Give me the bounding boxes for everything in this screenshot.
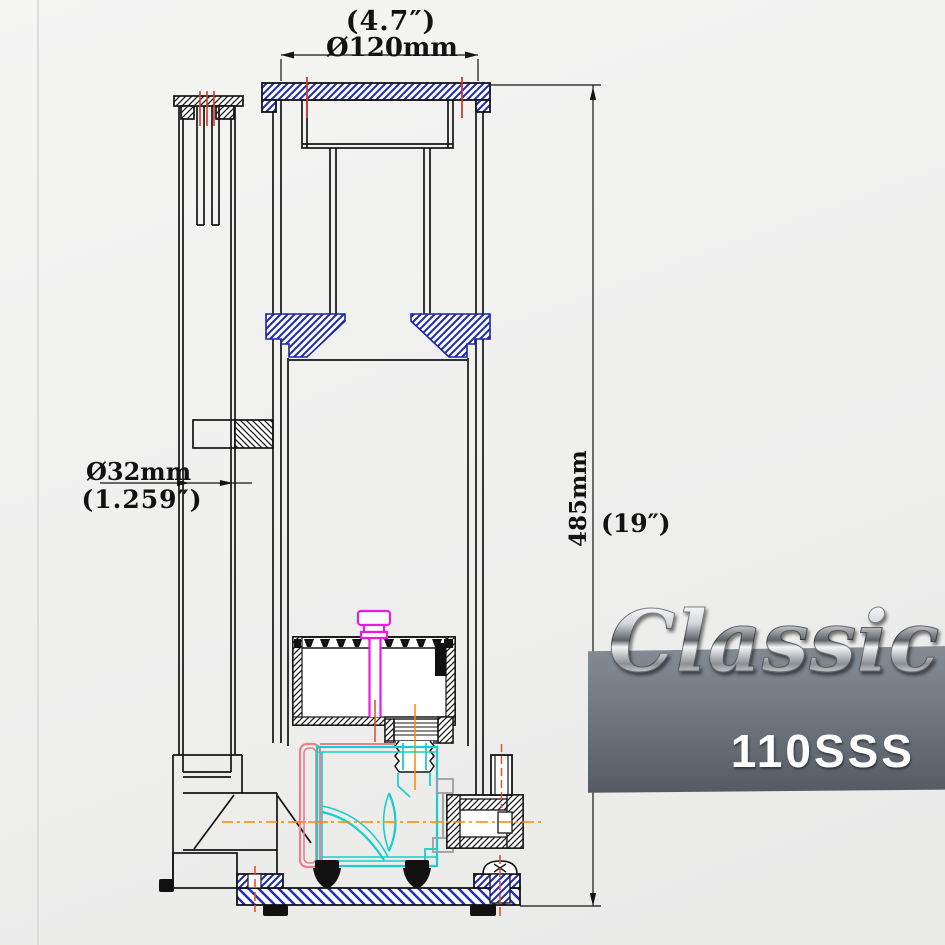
brand-badge: Classic 110SSS — [588, 598, 945, 803]
brand-script-logo: Classic — [606, 600, 942, 684]
pump-feet — [313, 860, 431, 889]
dim-left-inches-label: (1.259″) — [78, 485, 206, 514]
dimension-arrows — [177, 52, 596, 907]
dim-left-metric-label: Ø32mm — [86, 457, 176, 486]
dim-top-metric-label: Ø120mm — [326, 33, 456, 63]
base-screw-centerlines — [255, 855, 500, 916]
pump-bracket-pink — [300, 744, 396, 867]
model-number-label: 110SSS — [731, 724, 915, 778]
dim-right-inches-label: (19″) — [601, 509, 677, 538]
silencer-foam-block — [435, 643, 446, 676]
base-plate — [237, 861, 520, 905]
base-feet — [263, 905, 496, 916]
cone-flange — [266, 314, 490, 357]
cup-lid-flange — [262, 83, 490, 112]
dim-right-metric-label: 485mm — [565, 455, 591, 547]
screenshot-canvas: (4.7″) Ø120mm Ø32mm (1.259″) 485mm (19″)… — [0, 0, 945, 945]
left-column-foot — [159, 879, 174, 892]
venturi-fitting — [385, 717, 453, 743]
